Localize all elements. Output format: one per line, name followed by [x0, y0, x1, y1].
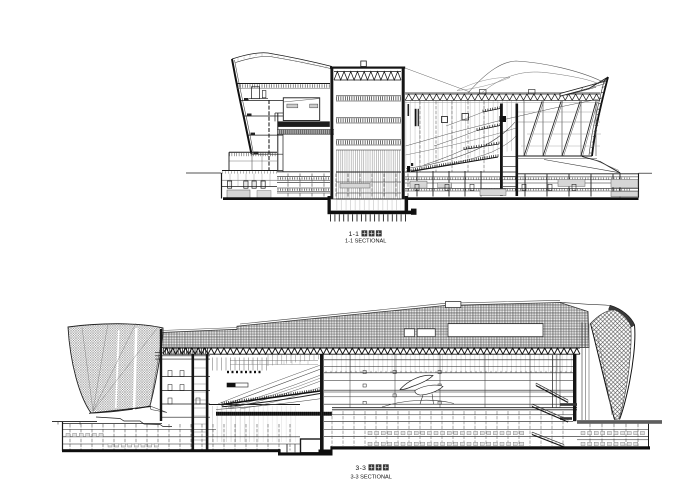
svg-text:3-3 SECTIONAL: 3-3 SECTIONAL — [351, 474, 392, 480]
svg-text:3-3: 3-3 — [356, 465, 367, 472]
svg-text:1-1: 1-1 — [349, 231, 360, 238]
svg-text:1-1 SECTIONAL: 1-1 SECTIONAL — [345, 239, 386, 245]
